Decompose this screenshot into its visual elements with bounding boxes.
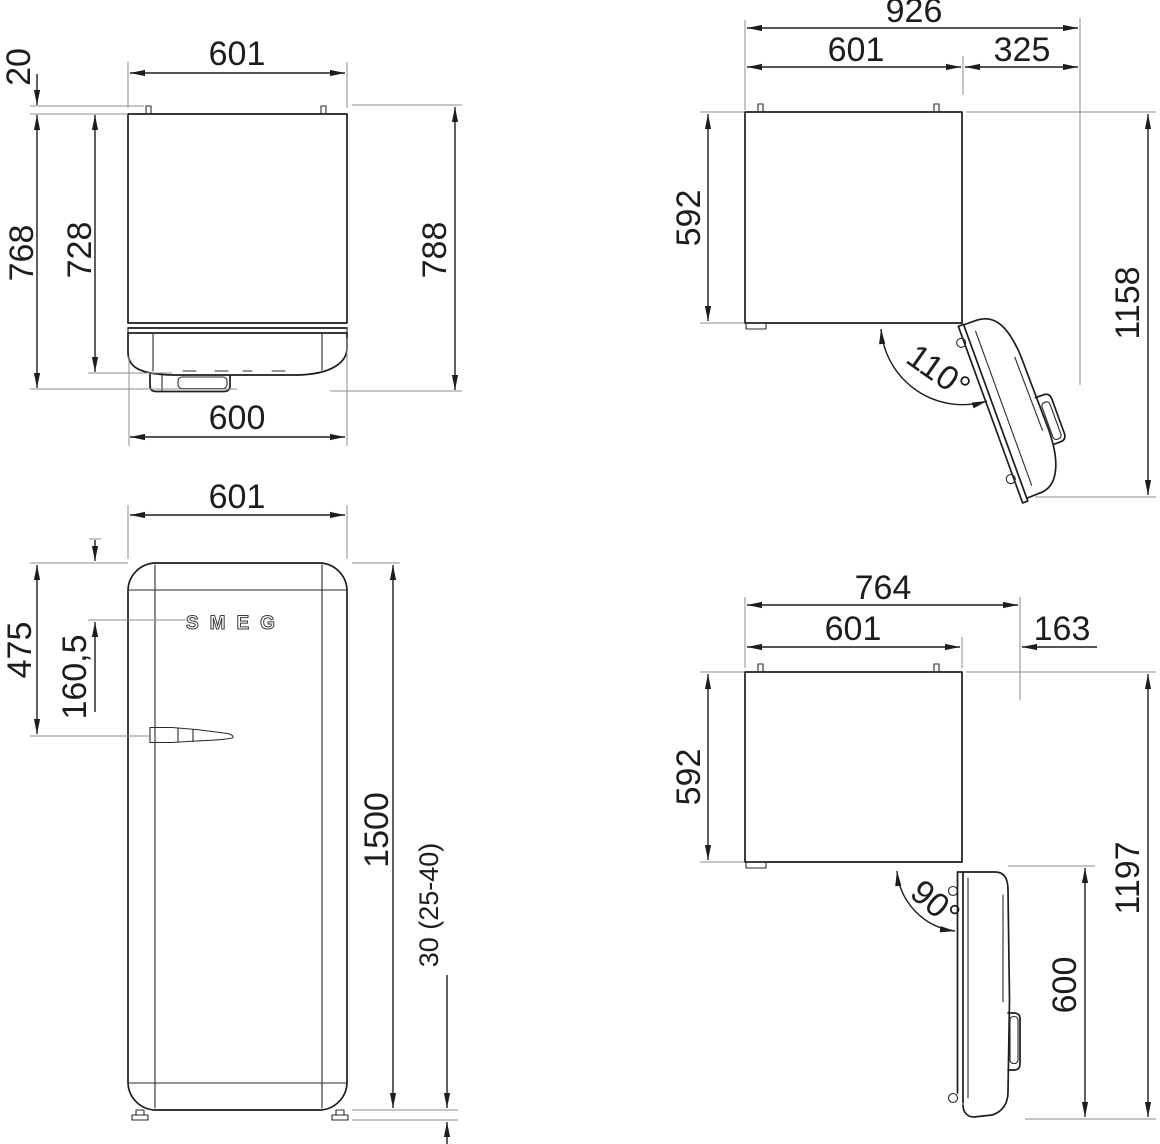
smeg-logo: SMEG bbox=[186, 613, 286, 634]
dim-body-depth-592: 592 bbox=[670, 672, 744, 862]
dim-width-601: 601 bbox=[128, 478, 347, 559]
dim-label-projection: 325 bbox=[994, 31, 1051, 69]
dim-label-hinge: 20 bbox=[0, 48, 38, 86]
dim-label-width: 601 bbox=[828, 31, 885, 69]
dim-label-depth-total: 788 bbox=[416, 222, 454, 279]
dim-hinge-20: 20 bbox=[0, 48, 144, 114]
dim-width-601: 601 bbox=[747, 610, 962, 668]
fridge-body bbox=[128, 106, 347, 323]
dim-envelope-depth-1158: 1158 bbox=[966, 112, 1156, 497]
dim-label-width: 601 bbox=[209, 478, 266, 516]
hinge-pin bbox=[934, 664, 939, 672]
hinge-pin bbox=[321, 106, 326, 114]
dim-label-depth-handle: 768 bbox=[3, 225, 41, 282]
dim-door-angle-90: 90° bbox=[897, 871, 967, 935]
fridge-door bbox=[128, 328, 347, 392]
view-top-open-90: 90° 764 601 163 592 1197 bbox=[670, 569, 1156, 1119]
door-open bbox=[951, 305, 1082, 506]
dim-label-door-width: 600 bbox=[209, 399, 266, 437]
door-handle bbox=[1008, 1013, 1020, 1070]
dim-label-envelope: 764 bbox=[855, 569, 912, 607]
dim-label-handle: 475 bbox=[1, 622, 39, 679]
hinge-pin bbox=[146, 106, 151, 114]
hinge-pin bbox=[949, 1094, 958, 1103]
fridge-body bbox=[745, 104, 962, 329]
hinge-pin bbox=[758, 664, 763, 672]
dim-label-height: 1500 bbox=[358, 792, 396, 868]
dim-envelope-764: 764 bbox=[745, 569, 1020, 700]
fridge-front: SMEG bbox=[128, 563, 348, 1120]
dim-label-feet: 30 (25-40) bbox=[414, 843, 444, 968]
dimension-drawing: 601 20 768 728 788 600 bbox=[0, 0, 1160, 1144]
door-stop bbox=[746, 323, 766, 329]
dim-door-angle-110: 110° bbox=[881, 329, 987, 407]
hinge-pin bbox=[758, 104, 763, 112]
dim-depth-total-788: 788 bbox=[330, 105, 462, 391]
dim-height-1500: 1500 bbox=[352, 563, 400, 1108]
dim-body-depth-592: 592 bbox=[670, 112, 744, 323]
door-stop bbox=[746, 862, 766, 868]
dim-projection-325: 325 bbox=[965, 31, 1078, 69]
dim-depth-door-728: 728 bbox=[61, 115, 172, 373]
dim-projection-163: 163 bbox=[1022, 610, 1097, 648]
view-front: SMEG 601 475 bbox=[1, 478, 458, 1144]
dim-label-logo: 160,5 bbox=[56, 634, 94, 719]
dim-label-projection: 163 bbox=[1034, 610, 1091, 648]
view-top-closed: 601 20 768 728 788 600 bbox=[0, 35, 462, 446]
fridge-body bbox=[745, 664, 962, 868]
dim-width-601: 601 bbox=[747, 31, 963, 95]
dim-width-601: 601 bbox=[128, 35, 347, 108]
view-top-open-110: 110° 926 601 325 592 1158 bbox=[670, 0, 1156, 506]
drawing-canvas: 601 20 768 728 788 600 bbox=[0, 0, 1160, 1144]
dim-label-envelope-depth: 1158 bbox=[1109, 266, 1147, 339]
hinge-pin bbox=[934, 104, 939, 112]
dim-label-envelope: 926 bbox=[886, 0, 943, 30]
dim-label-envelope-depth: 1197 bbox=[1109, 841, 1147, 914]
dim-label-width: 601 bbox=[825, 610, 882, 648]
leveling-foot bbox=[132, 1110, 348, 1120]
dim-label-door-depth: 600 bbox=[1046, 957, 1084, 1014]
dim-logo-160-5: 160,5 bbox=[56, 539, 186, 720]
dim-envelope-depth-1197: 1197 bbox=[966, 672, 1156, 1119]
door-handle bbox=[150, 728, 233, 743]
dim-label-depth: 592 bbox=[670, 190, 708, 247]
dim-depth-handle-768: 768 bbox=[3, 115, 237, 389]
dim-door-depth-600: 600 bbox=[1008, 866, 1095, 1117]
dim-label-depth: 592 bbox=[670, 749, 708, 806]
dim-label-depth-door: 728 bbox=[61, 222, 99, 279]
dim-label-width: 601 bbox=[209, 35, 266, 73]
dim-feet-30: 30 (25-40) bbox=[352, 843, 458, 1144]
